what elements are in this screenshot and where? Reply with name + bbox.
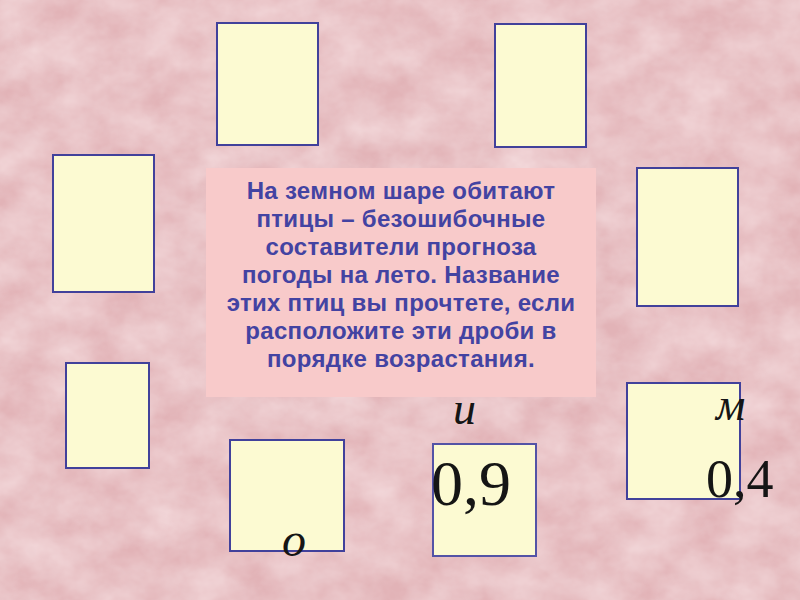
card-left-lower[interactable] bbox=[65, 362, 150, 469]
question-line: птицы – безошибочные bbox=[256, 205, 545, 233]
card-top-center[interactable] bbox=[216, 22, 319, 146]
letter-i-label: и bbox=[453, 386, 476, 432]
question-line: погоды на лето. Название bbox=[242, 261, 560, 289]
card-left-upper[interactable] bbox=[52, 154, 155, 293]
question-line: расположите эти дроби в bbox=[245, 317, 556, 345]
slide: На земном шаре обитают птицы – безошибоч… bbox=[0, 0, 800, 600]
question-line: этих птиц вы прочтете, если bbox=[227, 289, 576, 317]
question-line: порядке возрастания. bbox=[267, 345, 535, 373]
question-line: составители прогноза bbox=[265, 233, 536, 261]
value-09-label: 0,9 bbox=[431, 452, 511, 516]
letter-m-label: м bbox=[716, 382, 745, 428]
value-04-label: 0,4 bbox=[706, 452, 774, 506]
question-box: На земном шаре обитают птицы – безошибоч… bbox=[206, 168, 596, 397]
card-top-right[interactable] bbox=[494, 23, 587, 148]
card-right-middle[interactable] bbox=[636, 167, 739, 307]
question-line: На земном шаре обитают bbox=[247, 177, 556, 205]
letter-o-label: о bbox=[282, 516, 306, 564]
